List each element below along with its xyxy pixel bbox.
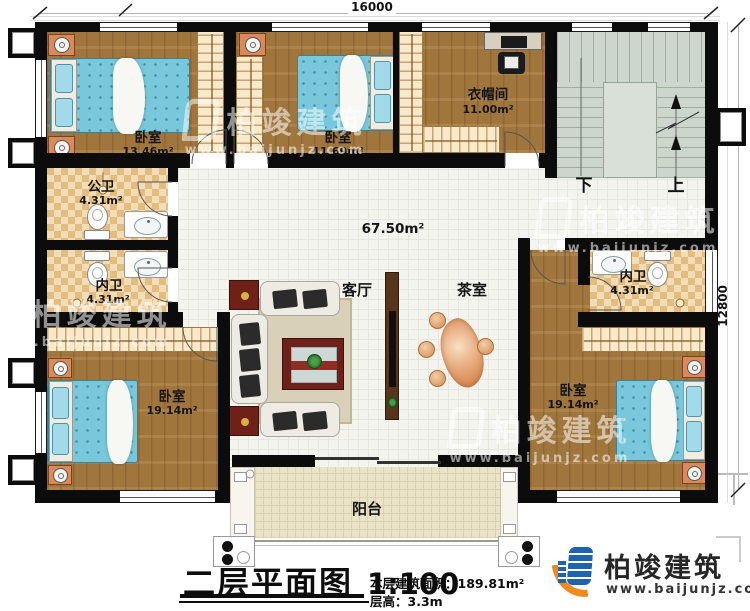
room-label: 阳台 <box>352 502 382 518</box>
brand-logo-icon <box>554 545 600 603</box>
stairs-down-label: 下 <box>576 178 593 196</box>
room-label: 内卫 <box>96 279 123 293</box>
room-label: 卧室 <box>159 390 186 404</box>
room-label: 内卫 <box>620 270 647 284</box>
floor-area-label: 本层建筑面积： <box>370 576 458 591</box>
central-area-value: 67.50m² <box>362 222 425 236</box>
floor-height-note: 层高：3.3m <box>370 591 443 610</box>
brand-logo: 柏竣建筑 www.baijunjz.com <box>552 542 750 608</box>
logo-frame-line <box>716 536 740 538</box>
room-area: 11.69m² <box>312 146 363 158</box>
stairs-up-label: 上 <box>668 178 685 196</box>
room-label: 公卫 <box>88 180 115 194</box>
dimension-depth: 12800 <box>716 285 730 327</box>
brand-name: 柏竣建筑 <box>604 546 724 585</box>
room-area: 4.31m² <box>79 195 122 207</box>
floor-height-value: 3.3m <box>408 594 443 609</box>
dimension-ticks <box>33 4 745 497</box>
floor-area-note: 本层建筑面积：189.81m² <box>370 573 524 592</box>
logo-frame-line <box>739 536 741 562</box>
stair-guides <box>581 58 699 192</box>
dimension-width: 16000 <box>348 0 396 14</box>
room-area: 13.46m² <box>122 146 173 158</box>
balcony-light <box>246 470 254 478</box>
logo-building-small <box>558 559 566 583</box>
floor-height-label: 层高： <box>370 594 408 609</box>
room-label: 卧室 <box>560 384 587 398</box>
room-area: 4.31m² <box>610 285 653 297</box>
room-area: 4.31m² <box>86 294 129 306</box>
brand-website: www.baijunjz.com <box>606 582 750 597</box>
room-label: 客厅 <box>342 283 372 299</box>
room-area: 19.14m² <box>547 399 598 411</box>
room-label: 卧室 <box>135 131 162 145</box>
room-label: 卧室 <box>325 131 352 145</box>
room-label: 衣帽间 <box>468 88 509 102</box>
floor-plan-sheet: 卧室 13.46m² 卧室 11.69m² 衣帽间 11.00m² 公卫 4.3… <box>0 0 750 611</box>
room-area: 19.14m² <box>146 405 197 417</box>
room-label: 茶室 <box>457 283 487 299</box>
logo-building <box>567 547 594 585</box>
title-underline <box>180 594 364 598</box>
floor-area-value: 189.81m² <box>458 576 525 591</box>
room-area: 11.00m² <box>462 104 513 116</box>
door-arcs <box>138 130 621 361</box>
title-underline <box>179 601 369 603</box>
